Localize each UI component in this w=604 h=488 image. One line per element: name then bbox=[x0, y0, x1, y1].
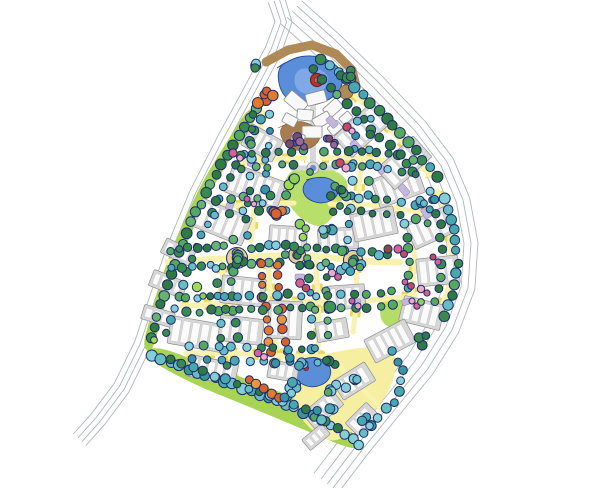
site-plan bbox=[0, 0, 604, 488]
site-plan-svg bbox=[0, 0, 604, 488]
